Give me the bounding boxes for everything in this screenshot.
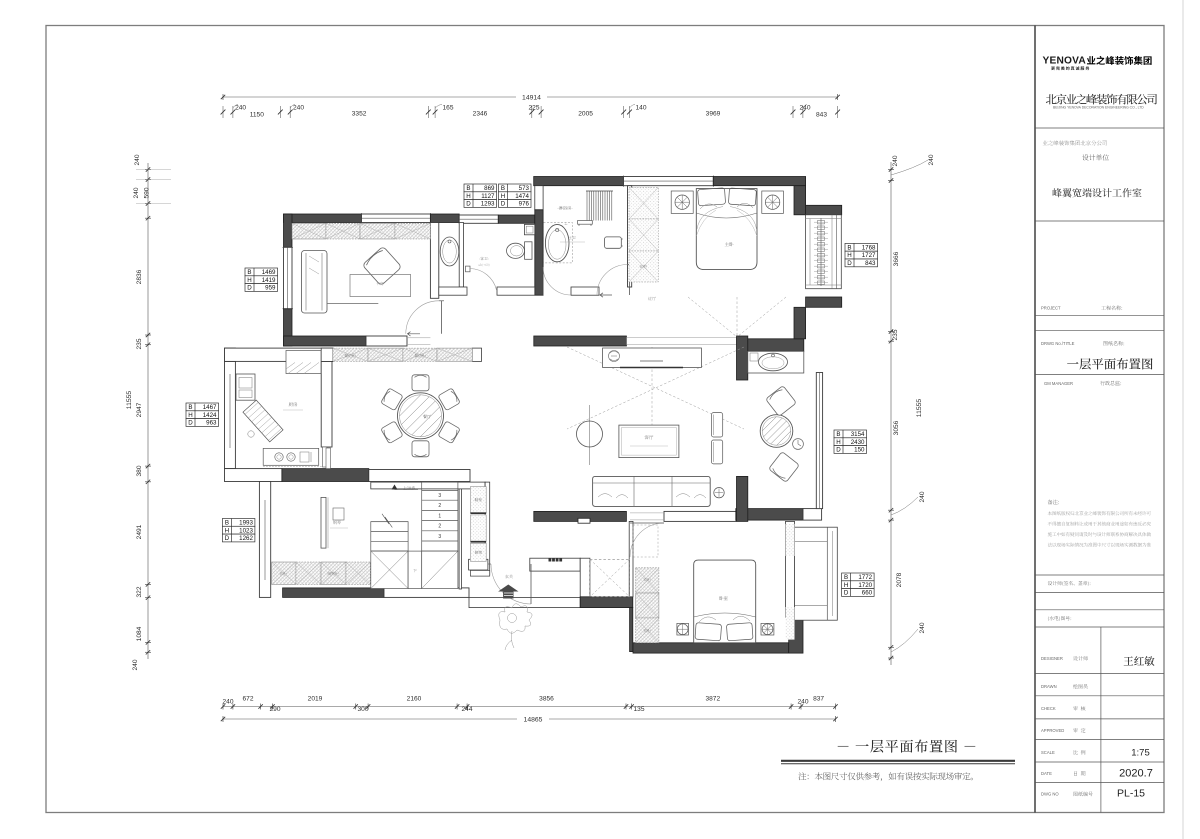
svg-text:240: 240: [892, 155, 899, 166]
svg-text:225: 225: [528, 105, 539, 112]
svg-text:140: 140: [635, 105, 646, 112]
svg-text:2836: 2836: [136, 269, 143, 284]
svg-text:1419: 1419: [262, 277, 276, 284]
svg-text:PROJECT: PROJECT: [1041, 306, 1061, 311]
svg-text:B: B: [247, 269, 251, 276]
svg-text:H: H: [247, 277, 251, 284]
svg-text:D: D: [847, 260, 852, 267]
svg-text:672: 672: [242, 696, 253, 703]
svg-text:3: 3: [438, 534, 441, 540]
svg-text:240: 240: [293, 105, 304, 112]
svg-text:963: 963: [206, 420, 217, 427]
svg-text:2: 2: [438, 503, 441, 509]
svg-text:1293: 1293: [481, 201, 495, 208]
svg-text:240: 240: [919, 491, 926, 502]
svg-text:240: 240: [134, 154, 141, 165]
svg-text:660: 660: [862, 590, 873, 597]
svg-text:976: 976: [519, 201, 530, 208]
svg-text:B: B: [188, 404, 192, 411]
svg-text:D: D: [466, 201, 471, 208]
svg-text:1993: 1993: [239, 520, 253, 527]
svg-text:1424: 1424: [203, 412, 217, 419]
svg-text:H: H: [836, 439, 840, 446]
svg-text:D: D: [836, 447, 841, 454]
svg-text:3872: 3872: [705, 696, 720, 703]
svg-text:869: 869: [484, 185, 495, 192]
svg-text:H: H: [188, 412, 192, 419]
svg-text:DWG NO: DWG NO: [1041, 792, 1059, 797]
svg-text:2: 2: [438, 524, 441, 530]
svg-text:APPROVED: APPROVED: [1041, 728, 1064, 733]
svg-text:240: 240: [222, 699, 233, 706]
svg-text:H: H: [466, 193, 470, 200]
svg-text:240: 240: [799, 105, 810, 112]
svg-text:1772: 1772: [858, 574, 872, 581]
svg-text:B: B: [836, 431, 840, 438]
svg-text:300: 300: [357, 706, 368, 713]
svg-text:D: D: [247, 285, 252, 292]
svg-text:B: B: [225, 520, 229, 527]
svg-text:CHECK: CHECK: [1041, 706, 1056, 711]
svg-text:244: 244: [461, 706, 472, 713]
svg-text:1023: 1023: [239, 527, 253, 534]
svg-text:H: H: [225, 527, 229, 534]
svg-text:165: 165: [442, 105, 453, 112]
svg-text:240: 240: [132, 659, 139, 670]
svg-text:322: 322: [136, 586, 143, 597]
svg-text:2346: 2346: [473, 111, 488, 118]
svg-text:D: D: [188, 420, 193, 427]
svg-text:3856: 3856: [539, 696, 554, 703]
svg-text:1:75: 1:75: [1131, 748, 1150, 759]
svg-text:B: B: [466, 185, 470, 192]
svg-text:B: B: [501, 185, 505, 192]
svg-text:SCALE: SCALE: [1041, 750, 1055, 755]
svg-text:240: 240: [919, 622, 926, 633]
svg-text:590: 590: [144, 187, 151, 198]
svg-text:DRWG No./TITLE: DRWG No./TITLE: [1041, 341, 1075, 346]
svg-text:2020.7: 2020.7: [1119, 768, 1153, 780]
svg-text:DRAWN: DRAWN: [1041, 684, 1057, 689]
svg-text:3666: 3666: [893, 251, 900, 266]
svg-text:3352: 3352: [352, 111, 367, 118]
svg-text:H: H: [501, 193, 505, 200]
svg-text:H: H: [847, 252, 851, 259]
svg-text:2005: 2005: [578, 111, 593, 118]
svg-text:2078: 2078: [896, 572, 903, 587]
svg-text:573: 573: [519, 185, 530, 192]
svg-text:290: 290: [269, 706, 280, 713]
svg-text:DESIGNER: DESIGNER: [1041, 656, 1063, 661]
svg-text:D: D: [844, 590, 849, 597]
svg-text:D: D: [501, 201, 506, 208]
svg-text:1084: 1084: [136, 626, 143, 641]
svg-text:3: 3: [438, 493, 441, 499]
svg-text:DATE: DATE: [1041, 771, 1052, 776]
svg-text:235: 235: [136, 338, 143, 349]
svg-text:14914: 14914: [522, 95, 541, 102]
svg-text:837: 837: [813, 696, 824, 703]
svg-text:843: 843: [865, 260, 876, 267]
svg-text:235: 235: [892, 329, 899, 340]
svg-text:2430: 2430: [851, 439, 865, 446]
svg-text:240: 240: [797, 699, 808, 706]
svg-text:959: 959: [265, 285, 276, 292]
svg-text:1262: 1262: [239, 535, 253, 542]
svg-text:150: 150: [854, 447, 865, 454]
svg-text:1127: 1127: [481, 193, 495, 200]
svg-text:135: 135: [633, 706, 644, 713]
svg-text:1474: 1474: [515, 193, 529, 200]
svg-text:B: B: [844, 574, 848, 581]
svg-text:240: 240: [235, 105, 246, 112]
svg-text:14865: 14865: [524, 717, 543, 724]
svg-text:2160: 2160: [407, 696, 422, 703]
svg-text:2019: 2019: [308, 696, 323, 703]
svg-text:1467: 1467: [203, 404, 217, 411]
svg-text:3154: 3154: [851, 431, 865, 438]
svg-text:1150: 1150: [250, 112, 265, 119]
svg-text:PL-15: PL-15: [1117, 788, 1145, 800]
svg-text:11555: 11555: [916, 399, 923, 418]
svg-text:3056: 3056: [893, 420, 900, 435]
svg-text:2947: 2947: [136, 402, 143, 417]
svg-text:1768: 1768: [862, 244, 876, 251]
svg-text:H: H: [844, 582, 848, 589]
svg-text:240: 240: [133, 187, 140, 198]
svg-text:843: 843: [816, 112, 827, 119]
svg-text:1720: 1720: [858, 582, 872, 589]
svg-text:2491: 2491: [136, 524, 143, 539]
svg-text:1: 1: [438, 513, 441, 519]
svg-text:1469: 1469: [262, 269, 276, 276]
svg-text:YENOVA: YENOVA: [1043, 56, 1087, 67]
svg-text:B: B: [847, 244, 851, 251]
svg-text:BEIJING YENOVA DECORATION ENGI: BEIJING YENOVA DECORATION ENGINEERING CO…: [1053, 106, 1144, 110]
svg-text:3969: 3969: [706, 111, 721, 118]
svg-text:11555: 11555: [126, 391, 133, 410]
svg-text:380: 380: [136, 465, 143, 476]
svg-text:D: D: [225, 535, 230, 542]
svg-text:GM MANAGER: GM MANAGER: [1044, 381, 1073, 386]
svg-text:1727: 1727: [862, 252, 876, 259]
svg-text:240: 240: [928, 154, 935, 165]
